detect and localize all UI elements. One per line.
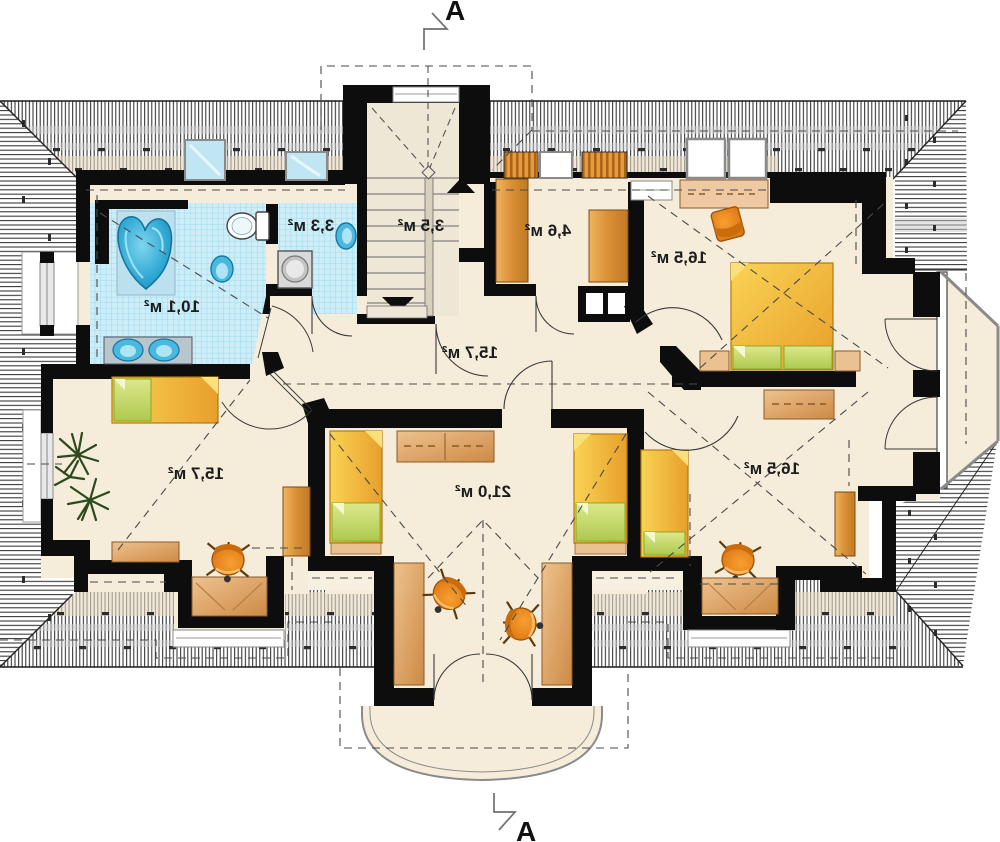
svg-text:16,5 м²: 16,5 м² bbox=[651, 248, 707, 267]
svg-text:15,7 м²: 15,7 м² bbox=[442, 343, 498, 362]
svg-text:15,7 м²: 15,7 м² bbox=[168, 464, 224, 483]
svg-text:16,5 м²: 16,5 м² bbox=[744, 459, 800, 478]
svg-text:10,1 м²: 10,1 м² bbox=[144, 297, 200, 316]
svg-text:A: A bbox=[445, 0, 465, 26]
svg-text:4,6 м²: 4,6 м² bbox=[524, 221, 571, 240]
svg-text:A: A bbox=[516, 816, 536, 842]
svg-text:21,0 м²: 21,0 м² bbox=[455, 482, 511, 501]
svg-text:3,3 м²: 3,3 м² bbox=[287, 216, 334, 235]
svg-text:3,5 м²: 3,5 м² bbox=[397, 216, 444, 235]
